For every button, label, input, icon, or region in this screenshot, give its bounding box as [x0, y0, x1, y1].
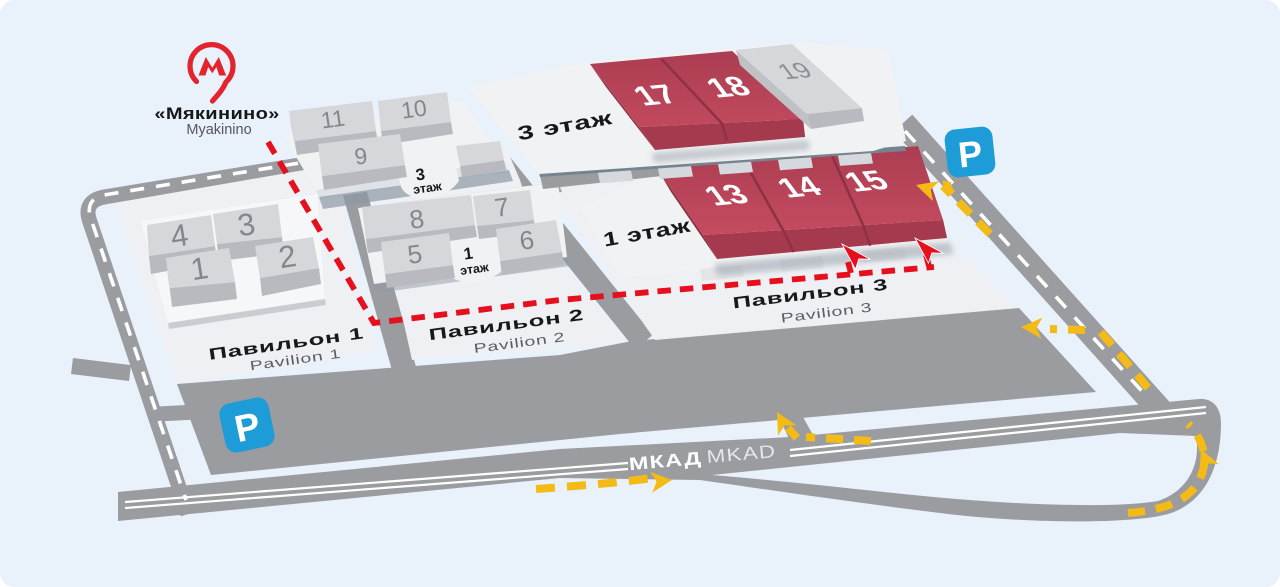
- svg-text:10: 10: [399, 94, 428, 123]
- svg-text:11: 11: [319, 105, 346, 134]
- svg-text:«Мякинино»: «Мякинино»: [154, 103, 279, 122]
- svg-text:Myakinino: Myakinino: [186, 122, 251, 138]
- svg-text:P: P: [956, 132, 984, 175]
